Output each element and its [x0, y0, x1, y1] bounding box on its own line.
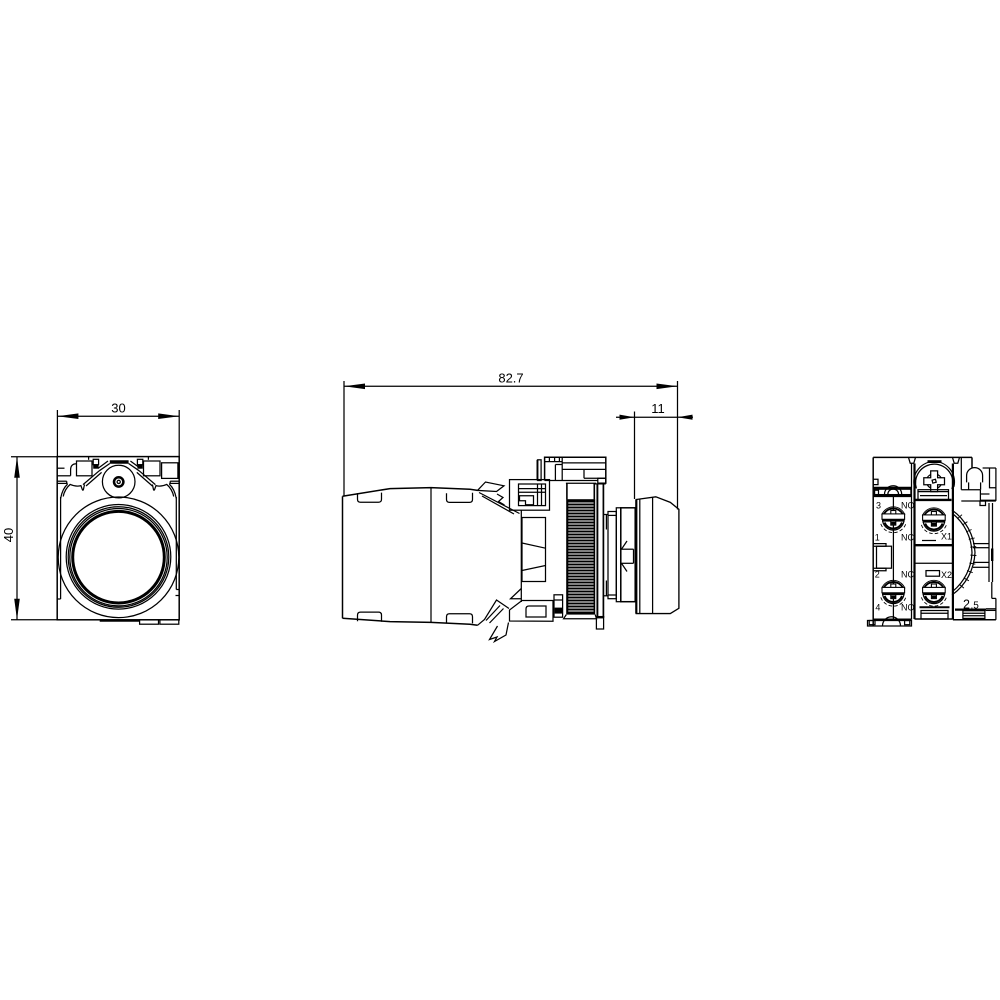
svg-text:82.7: 82.7 — [498, 371, 523, 386]
svg-text:40: 40 — [1, 528, 16, 542]
svg-text:NO: NO — [901, 501, 915, 511]
svg-text:X1: X1 — [941, 532, 952, 542]
svg-text:NO: NO — [901, 603, 915, 613]
svg-text:1: 1 — [875, 533, 880, 543]
svg-text:NC: NC — [901, 570, 914, 580]
svg-text:X2: X2 — [941, 570, 952, 580]
svg-text:30: 30 — [111, 401, 125, 416]
svg-text:NC: NC — [901, 533, 914, 543]
svg-text:11: 11 — [651, 401, 665, 416]
svg-text:4: 4 — [875, 603, 880, 613]
svg-text:3: 3 — [876, 501, 881, 511]
